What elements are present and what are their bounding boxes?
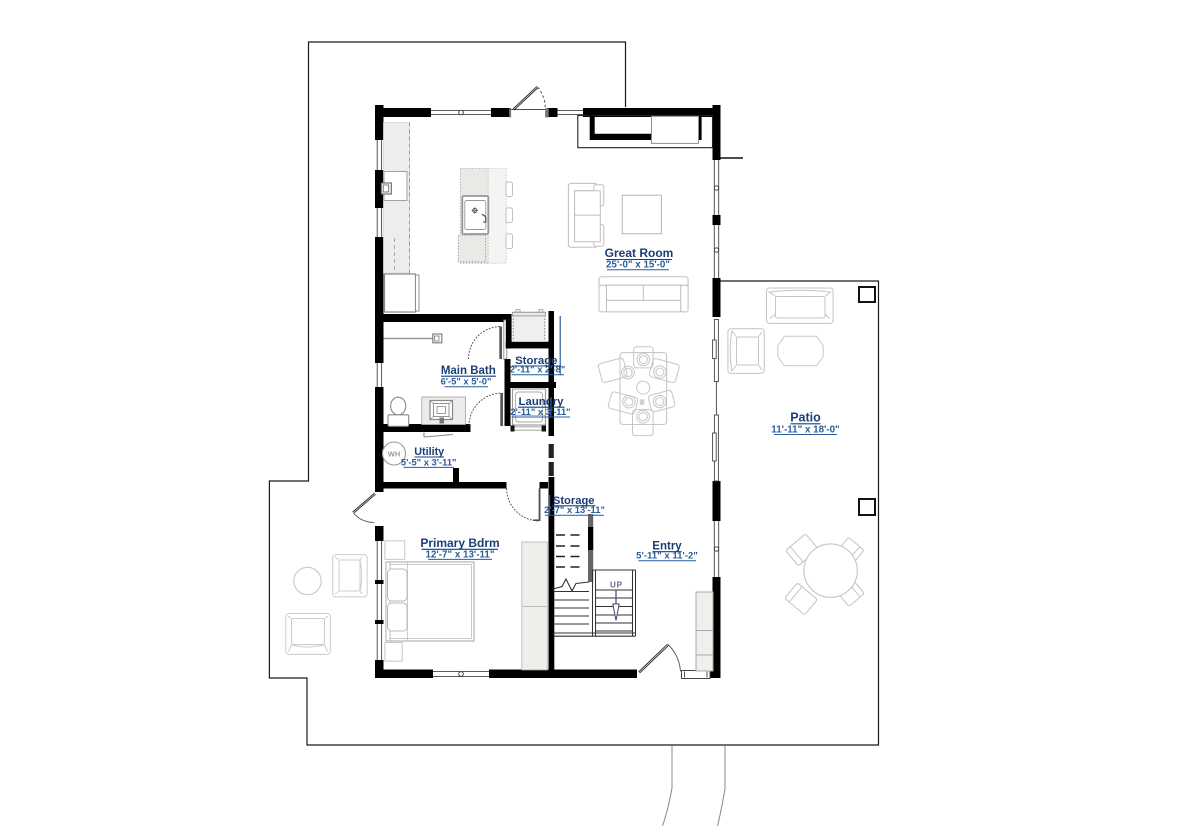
- svg-text:12'-7" x 13'-11": 12'-7" x 13'-11": [426, 549, 495, 560]
- svg-text:2'-11" x 3'-11": 2'-11" x 3'-11": [510, 406, 570, 417]
- svg-text:Patio: Patio: [790, 411, 821, 425]
- svg-text:2'-11" x 2'-8": 2'-11" x 2'-8": [510, 364, 566, 375]
- svg-text:UP: UP: [610, 581, 623, 590]
- svg-text:11'-11" x 18'-0": 11'-11" x 18'-0": [771, 424, 839, 435]
- svg-text:Primary Bdrm: Primary Bdrm: [420, 536, 499, 550]
- svg-text:5'-11" x 11'-2": 5'-11" x 11'-2": [636, 551, 698, 562]
- svg-text:2'-7" x 13'-11": 2'-7" x 13'-11": [544, 504, 605, 515]
- svg-text:25'-0" x 15'-0": 25'-0" x 15'-0": [606, 259, 670, 270]
- svg-text:5'-5" x 3'-11": 5'-5" x 3'-11": [401, 456, 457, 467]
- svg-text:Great Room: Great Room: [605, 246, 674, 260]
- svg-text:6'-5" x 5'-0": 6'-5" x 5'-0": [441, 376, 492, 387]
- svg-text:WH: WH: [388, 450, 401, 459]
